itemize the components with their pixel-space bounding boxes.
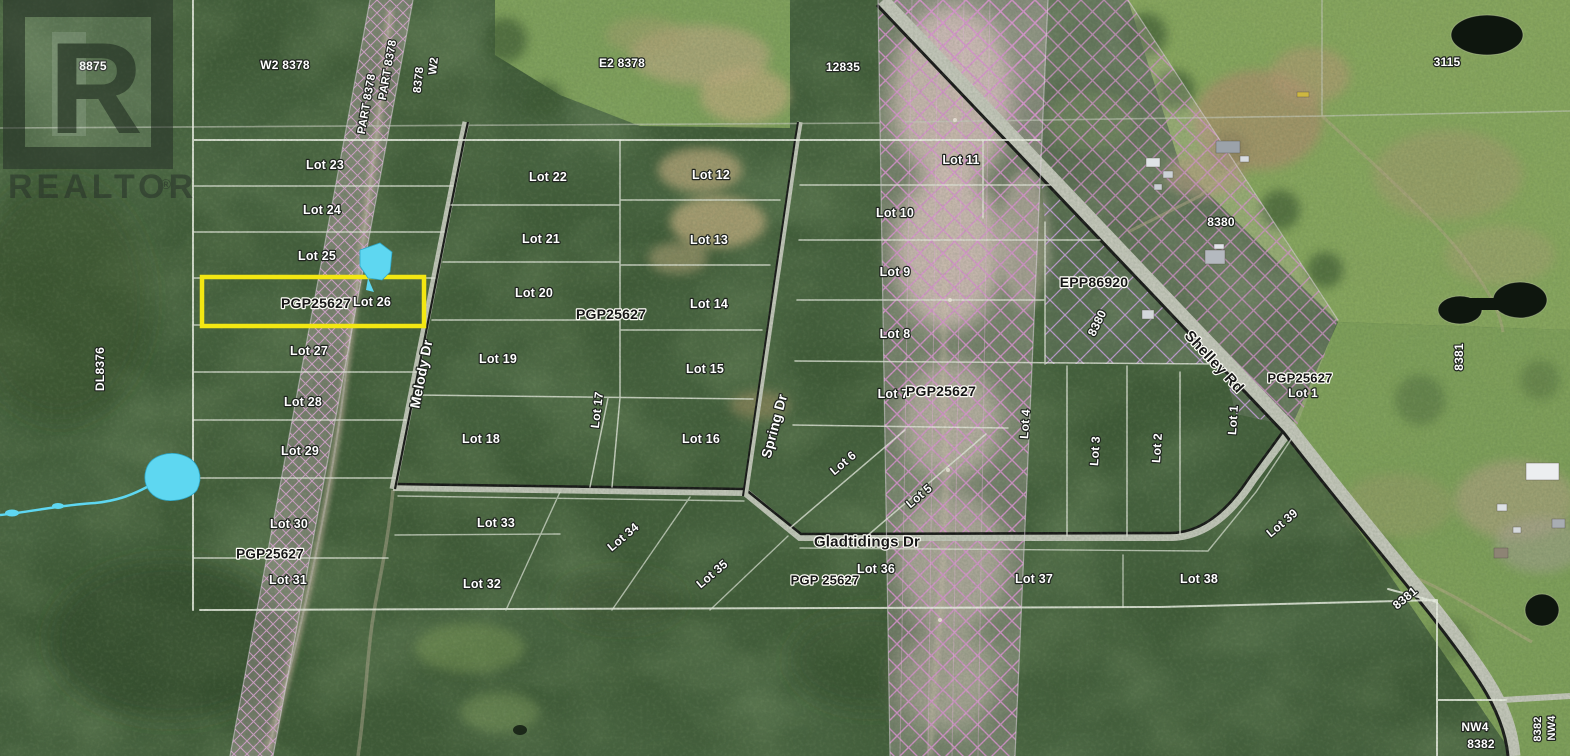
map-label-num-8381-vert: 8381 xyxy=(1452,343,1466,371)
map-label-pgp25627-c: PGP25627 xyxy=(576,306,646,322)
map-label-lot-1-east: Lot 1 xyxy=(1288,386,1318,400)
map-label-lot-27: Lot 27 xyxy=(290,344,328,358)
map-label-lot-15: Lot 15 xyxy=(686,362,724,376)
map-label-lot-8: Lot 8 xyxy=(880,327,911,341)
realtor-logo-letter: R xyxy=(49,15,143,161)
map-label-epp86920: EPP86920 xyxy=(1060,274,1129,290)
realtor-watermark: R REALTOR ® xyxy=(8,6,197,206)
map-label-pgp25627-f: PGP 25627 xyxy=(791,573,860,588)
map-label-num-nw4-vert: NW4 xyxy=(1546,715,1558,741)
map-label-pgp25627-a: PGP25627 xyxy=(281,295,351,311)
texture-grain xyxy=(0,0,1570,756)
map-label-lot-16: Lot 16 xyxy=(682,432,720,446)
map-label-num-w2-8378: W2 8378 xyxy=(260,58,310,72)
aerial-parcel-map: 8875W2 8378PART 8378PART 83788378W2E2 83… xyxy=(0,0,1570,756)
map-label-lot-33: Lot 33 xyxy=(477,516,515,530)
registered-trademark-icon: ® xyxy=(161,176,172,192)
map-label-lot-10: Lot 10 xyxy=(876,206,914,220)
map-label-lot-18: Lot 18 xyxy=(462,432,500,446)
map-label-lot-20: Lot 20 xyxy=(515,286,553,300)
map-label-num-e2-8378: E2 8378 xyxy=(599,56,645,70)
map-label-num-8382-vert: 8382 xyxy=(1532,716,1544,741)
map-label-lot-26: Lot 26 xyxy=(353,295,391,309)
map-label-lot-37: Lot 37 xyxy=(1015,572,1053,586)
map-label-lot-19: Lot 19 xyxy=(479,352,517,366)
map-label-lot-32: Lot 32 xyxy=(463,577,501,591)
map-label-gladtidings-dr: Gladtidings Dr xyxy=(814,534,920,551)
map-label-num-nw4: NW4 xyxy=(1461,720,1488,734)
map-label-lot-9: Lot 9 xyxy=(880,265,911,279)
map-label-lot-21: Lot 21 xyxy=(522,232,560,246)
map-label-num-8380-h: 8380 xyxy=(1207,215,1235,229)
map-label-pgp25627-e: PGP25627 xyxy=(1267,371,1332,386)
map-label-lot-25: Lot 25 xyxy=(298,249,336,263)
map-label-lot-2: Lot 2 xyxy=(1149,433,1165,464)
map-label-pgp25627-b: PGP25627 xyxy=(236,547,304,562)
map-label-lot-38: Lot 38 xyxy=(1180,572,1218,586)
map-canvas[interactable]: 8875W2 8378PART 8378PART 83788378W2E2 83… xyxy=(0,0,1570,756)
map-label-lot-4: Lot 4 xyxy=(1017,409,1033,440)
map-label-lot-7: Lot 7 xyxy=(878,387,909,401)
map-label-lot-3: Lot 3 xyxy=(1087,436,1103,467)
map-label-lot-24: Lot 24 xyxy=(303,203,341,217)
pond-large xyxy=(145,454,200,501)
map-label-lot-1-west: Lot 1 xyxy=(1225,405,1241,436)
map-label-lot-29: Lot 29 xyxy=(281,444,319,458)
map-label-num-12835: 12835 xyxy=(826,60,860,74)
map-label-lot-11: Lot 11 xyxy=(942,153,979,167)
map-label-pgp25627-d: PGP25627 xyxy=(906,383,976,399)
map-label-lot-22: Lot 22 xyxy=(529,170,567,184)
map-label-lot-13: Lot 13 xyxy=(690,233,728,247)
map-label-num-w2-vert: W2 xyxy=(427,57,441,76)
map-label-num-3115: 3115 xyxy=(1434,55,1461,69)
map-label-lot-28: Lot 28 xyxy=(284,395,322,409)
map-label-lot-14: Lot 14 xyxy=(690,297,728,311)
map-label-lot-36: Lot 36 xyxy=(857,562,895,576)
map-label-lot-23: Lot 23 xyxy=(306,158,344,172)
map-label-dl8376: DL8376 xyxy=(93,347,107,391)
map-label-lot-31: Lot 31 xyxy=(269,573,307,587)
map-label-lot-30: Lot 30 xyxy=(270,517,308,531)
map-label-lot-12: Lot 12 xyxy=(692,168,730,182)
map-label-num-8382: 8382 xyxy=(1467,737,1495,751)
